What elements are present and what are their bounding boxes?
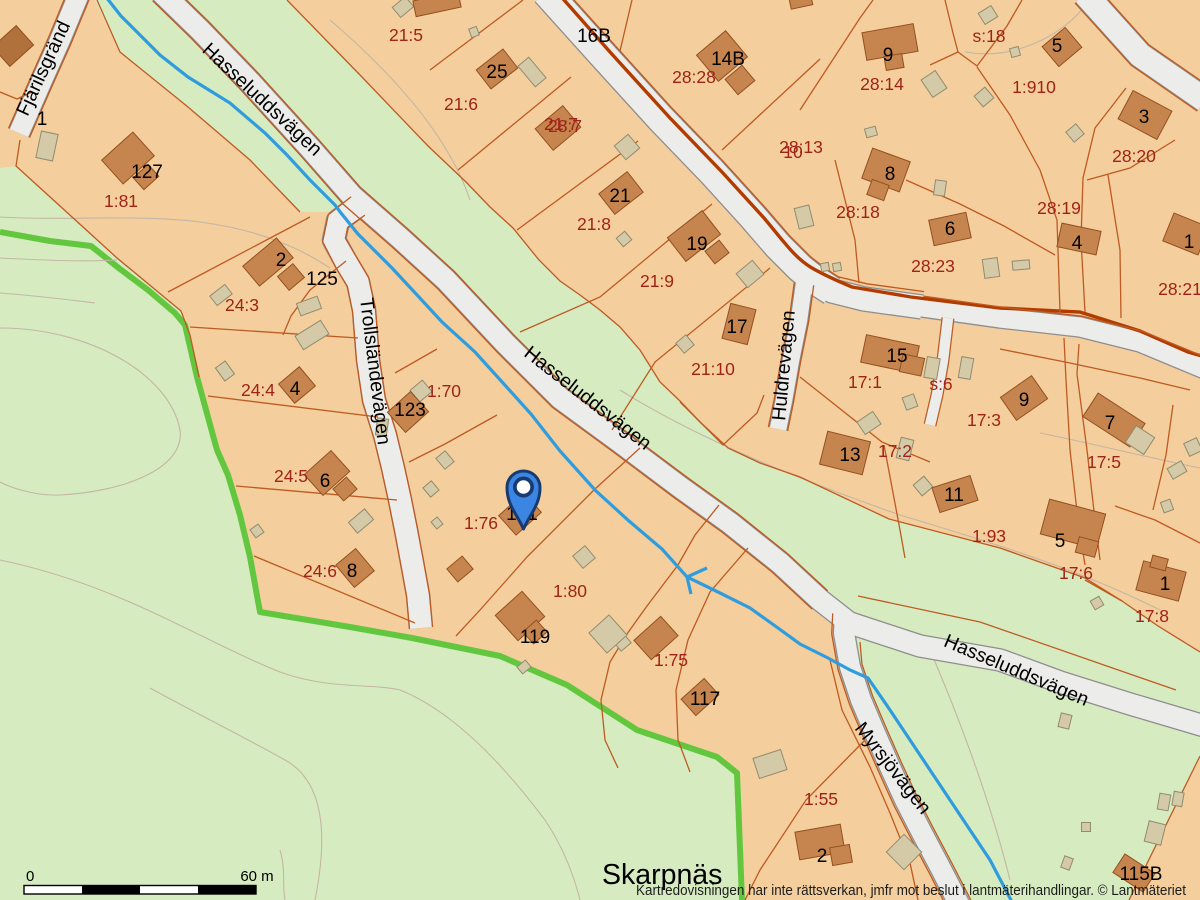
svg-text:21:9: 21:9: [640, 271, 674, 291]
svg-text:28:21: 28:21: [1158, 279, 1200, 299]
svg-text:10: 10: [783, 142, 803, 162]
svg-text:3: 3: [1139, 107, 1150, 128]
svg-text:21:10: 21:10: [691, 359, 735, 379]
svg-text:24:5: 24:5: [274, 466, 308, 486]
svg-text:123: 123: [394, 400, 426, 421]
svg-text:21: 21: [609, 186, 630, 207]
svg-text:7: 7: [1105, 413, 1116, 434]
svg-text:119: 119: [520, 627, 550, 648]
svg-text:16B: 16B: [577, 26, 611, 47]
svg-text:17:5: 17:5: [1087, 452, 1121, 472]
svg-text:5: 5: [1055, 531, 1066, 552]
svg-text:17: 17: [726, 317, 747, 338]
svg-text:9: 9: [883, 45, 894, 66]
svg-text:28:23: 28:23: [911, 256, 955, 276]
svg-text:1:55: 1:55: [804, 789, 838, 809]
svg-text:11: 11: [944, 485, 964, 506]
svg-text:115B: 115B: [1120, 864, 1163, 885]
svg-text:1: 1: [37, 109, 48, 130]
svg-text:2: 2: [276, 250, 287, 271]
svg-text:28:18: 28:18: [836, 202, 880, 222]
svg-text:14B: 14B: [711, 49, 745, 70]
svg-text:1:76: 1:76: [464, 513, 498, 533]
svg-text:28:7: 28:7: [548, 116, 582, 136]
svg-text:28:20: 28:20: [1112, 146, 1156, 166]
svg-text:21:5: 21:5: [389, 25, 423, 45]
svg-text:28:14: 28:14: [860, 74, 904, 94]
svg-text:21:6: 21:6: [444, 94, 478, 114]
svg-text:6: 6: [320, 471, 331, 492]
svg-text:24:4: 24:4: [241, 380, 275, 400]
svg-text:127: 127: [131, 162, 163, 183]
svg-text:24:6: 24:6: [303, 561, 337, 581]
svg-text:1:81: 1:81: [104, 191, 138, 211]
svg-text:4: 4: [290, 379, 301, 400]
svg-text:s:18: s:18: [972, 26, 1005, 46]
svg-text:15: 15: [886, 346, 907, 367]
svg-text:17:2: 17:2: [878, 441, 912, 461]
svg-text:0: 0: [26, 868, 34, 885]
svg-text:125: 125: [306, 269, 338, 290]
svg-text:25: 25: [486, 62, 507, 83]
svg-text:60 m: 60 m: [240, 868, 273, 885]
svg-text:8: 8: [885, 164, 896, 185]
svg-text:1:75: 1:75: [654, 650, 688, 670]
svg-text:17:3: 17:3: [967, 410, 1001, 430]
svg-text:1:70: 1:70: [427, 381, 461, 401]
svg-text:13: 13: [839, 445, 860, 466]
svg-text:1: 1: [1184, 232, 1195, 253]
svg-text:1: 1: [1160, 574, 1171, 595]
svg-text:4: 4: [1072, 233, 1083, 254]
svg-text:Kartredovisningen har inte rät: Kartredovisningen har inte rättsverkan, …: [636, 883, 1186, 899]
svg-text:17:8: 17:8: [1135, 606, 1169, 626]
svg-text:1:80: 1:80: [553, 581, 587, 601]
svg-text:28:28: 28:28: [672, 67, 716, 87]
svg-text:17:1: 17:1: [848, 372, 882, 392]
svg-text:28:19: 28:19: [1037, 198, 1081, 218]
svg-text:s:6: s:6: [929, 374, 952, 394]
svg-text:117: 117: [690, 689, 720, 710]
svg-text:24:3: 24:3: [225, 295, 259, 315]
svg-text:21:8: 21:8: [577, 214, 611, 234]
svg-text:19: 19: [686, 234, 707, 255]
svg-text:1:93: 1:93: [972, 526, 1006, 546]
svg-text:8: 8: [347, 561, 358, 582]
svg-text:9: 9: [1019, 390, 1030, 411]
svg-text:6: 6: [945, 219, 956, 240]
svg-text:1:910: 1:910: [1012, 77, 1056, 97]
svg-text:5: 5: [1052, 36, 1063, 57]
svg-text:17:6: 17:6: [1059, 563, 1093, 583]
svg-text:2: 2: [817, 846, 828, 867]
